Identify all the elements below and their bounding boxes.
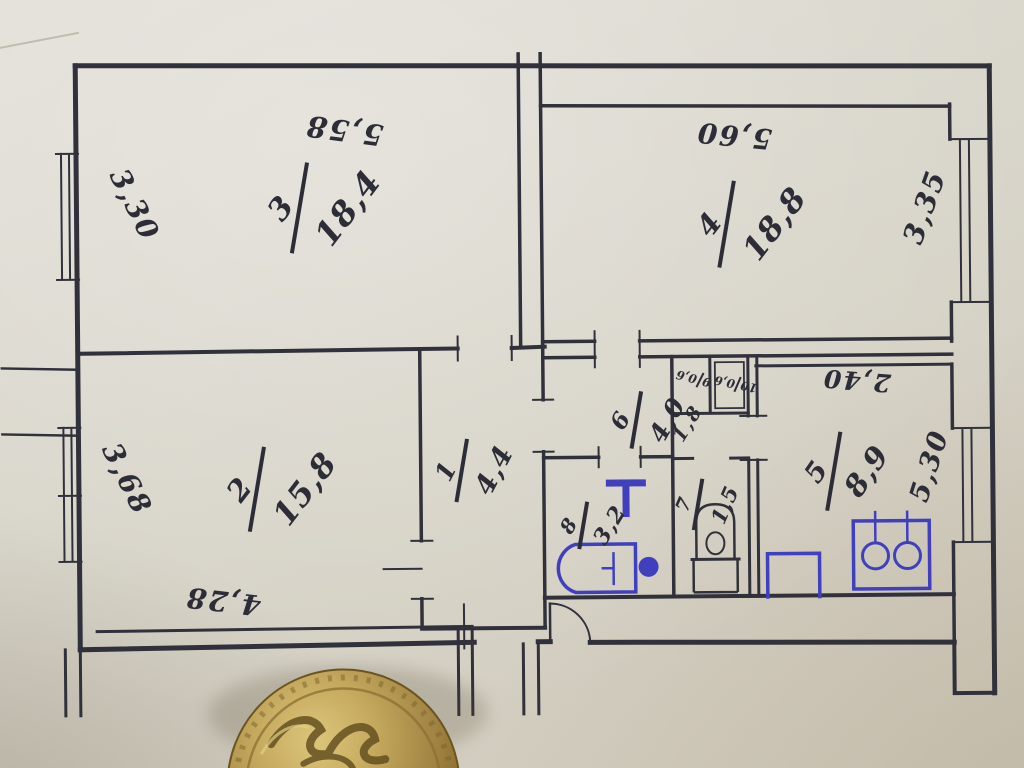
closet-area: 0,6 <box>675 367 699 386</box>
room-label-8: 8 3,2 <box>561 501 631 550</box>
dimension-label: 3,68 <box>95 437 159 520</box>
closet-area: 0,6 <box>713 373 736 391</box>
dimension-label: 5,60 <box>694 115 773 155</box>
dimension-label: 3,30 <box>103 163 167 246</box>
room-area: 8,9 <box>837 438 897 503</box>
room-area: 18,8 <box>734 180 814 268</box>
room-label-5: 5 8,9 <box>806 431 895 512</box>
room-label-2: 2 15,8 <box>229 445 346 532</box>
room-area: 3,2 <box>588 501 632 550</box>
room-label-7: 7 1,5 <box>677 478 745 531</box>
dimension-label: 3,35 <box>896 165 953 248</box>
floor-plan-photo: 3 18,4 4 18,8 2 15,8 1 4,4 6 <box>0 0 1024 768</box>
room-area: 4,4 <box>468 440 520 500</box>
room-label-1: 1 4,4 <box>436 438 519 503</box>
handwritten-labels: 3 18,4 4 18,8 2 15,8 1 4,4 6 <box>0 0 1024 768</box>
room-label-3: 3 18,4 <box>270 161 391 254</box>
dimension-label: 4,28 <box>183 580 262 621</box>
room-label-4: 4 18,8 <box>698 179 815 268</box>
closet-label-right: 10 0,6 <box>713 372 759 396</box>
room-area: 1,5 <box>705 481 744 527</box>
closet-number: 10 <box>739 378 758 395</box>
dimension-label: 5,58 <box>303 108 385 152</box>
room-number: 7 <box>671 494 697 516</box>
room-area: 18,4 <box>307 162 389 253</box>
room-area: 15,8 <box>264 445 344 533</box>
dimension-label: 2,40 <box>821 363 892 397</box>
dimension-label: 5,30 <box>904 426 956 506</box>
floor-plan: 3 18,4 4 18,8 2 15,8 1 4,4 6 <box>0 0 1024 768</box>
closet-label-left: 9 0,6 <box>675 366 713 390</box>
